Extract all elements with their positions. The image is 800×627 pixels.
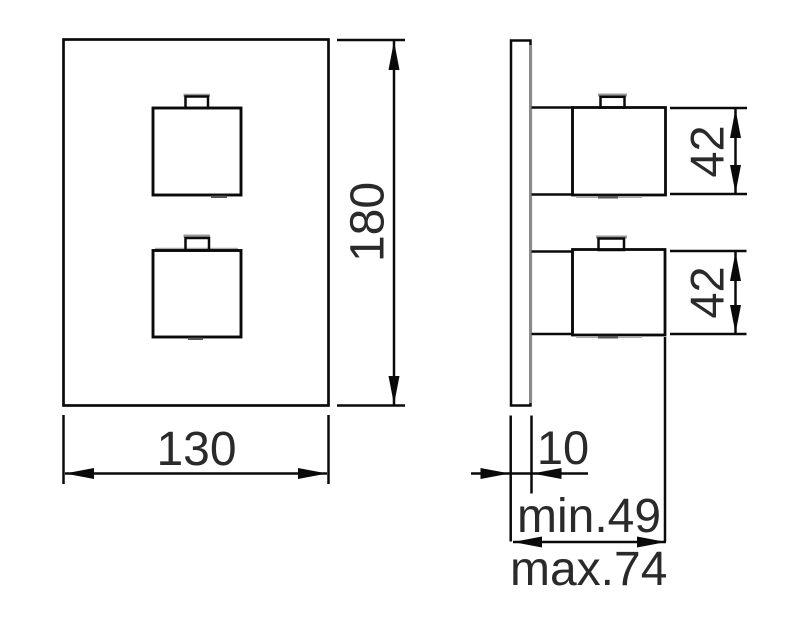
svg-text:180: 180 xyxy=(342,182,395,262)
svg-text:42: 42 xyxy=(681,125,734,177)
svg-text:min.49: min.49 xyxy=(517,490,661,543)
svg-text:10: 10 xyxy=(537,421,589,474)
svg-text:130: 130 xyxy=(156,423,236,476)
svg-text:42: 42 xyxy=(681,266,734,318)
svg-text:max.74: max.74 xyxy=(510,543,667,596)
